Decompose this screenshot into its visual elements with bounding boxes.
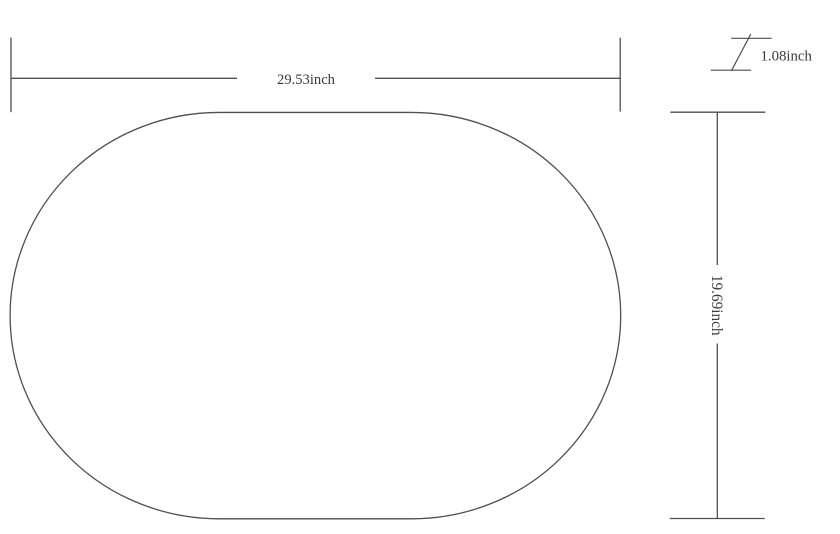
svg-text:1.08inch: 1.08inch [761,49,813,65]
svg-text:19.69inch: 19.69inch [708,275,725,336]
svg-text:29.53inch: 29.53inch [277,72,336,88]
